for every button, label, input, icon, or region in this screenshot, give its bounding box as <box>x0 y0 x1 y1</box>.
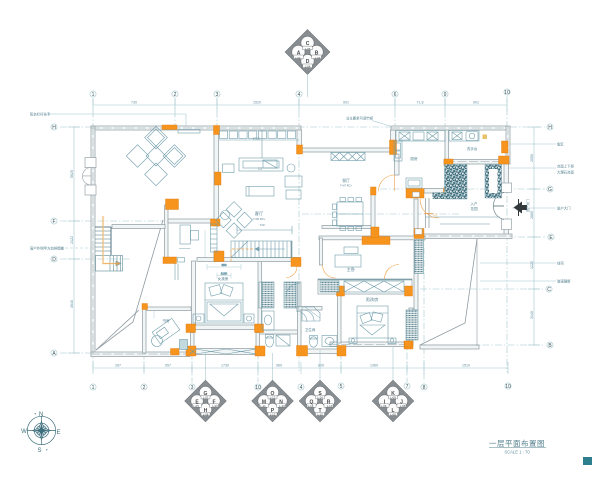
svg-text:5: 5 <box>340 384 343 390</box>
svg-text:E: E <box>56 430 60 436</box>
svg-text:5625: 5625 <box>70 170 74 178</box>
svg-text:1520: 1520 <box>253 101 261 105</box>
svg-text:L-05: L-05 <box>193 404 199 408</box>
svg-text:N: N <box>39 412 43 418</box>
svg-text:3: 3 <box>191 385 194 391</box>
svg-text:L-03: L-03 <box>315 56 321 60</box>
svg-text:厨房: 厨房 <box>410 156 418 161</box>
svg-text:台面上下柜: 台面上下柜 <box>557 164 575 169</box>
svg-text:6: 6 <box>394 92 397 98</box>
svg-text:901: 901 <box>473 101 479 105</box>
svg-text:1222: 1222 <box>530 261 534 269</box>
svg-text:玻璃隔断: 玻璃隔断 <box>557 279 571 284</box>
svg-text:L-12: L-12 <box>270 396 276 400</box>
svg-text:L-04: L-04 <box>305 65 311 69</box>
svg-text:901: 901 <box>343 101 349 105</box>
svg-text:2: 2 <box>143 385 146 391</box>
svg-text:4: 4 <box>300 385 303 391</box>
svg-text:9: 9 <box>444 92 447 98</box>
svg-text:鱼缸: 鱼缸 <box>557 142 564 147</box>
svg-text:1360: 1360 <box>370 364 378 368</box>
svg-text:L-02: L-02 <box>295 56 301 60</box>
svg-text:进户大门: 进户大门 <box>557 206 571 211</box>
svg-text:4: 4 <box>298 92 301 98</box>
svg-text:2865: 2865 <box>530 211 534 219</box>
svg-text:L-08: L-08 <box>390 413 396 417</box>
svg-text:洗手台: 洗手台 <box>467 146 478 151</box>
svg-text:287: 287 <box>115 364 121 368</box>
svg-text:650: 650 <box>221 263 226 267</box>
svg-text:线帘: 线帘 <box>557 261 564 266</box>
svg-text:71.8: 71.8 <box>417 101 424 105</box>
svg-text:G: G <box>548 187 552 193</box>
svg-text:D: D <box>52 257 56 263</box>
svg-text:1130: 1130 <box>221 272 228 276</box>
svg-text:8: 8 <box>423 385 426 391</box>
svg-text:L-08: L-08 <box>203 413 209 417</box>
svg-text:1: 1 <box>92 92 95 98</box>
svg-text:10: 10 <box>504 90 510 96</box>
svg-text:800: 800 <box>318 364 324 368</box>
svg-text:L-14: L-14 <box>317 396 323 400</box>
svg-text:960: 960 <box>276 364 282 368</box>
svg-text:740: 740 <box>259 223 264 227</box>
svg-text:957: 957 <box>165 364 171 368</box>
svg-text:客厅: 客厅 <box>255 210 263 217</box>
svg-text:3: 3 <box>216 92 219 98</box>
svg-text:10: 10 <box>255 385 261 391</box>
svg-text:Y=06 RC+: Y=06 RC+ <box>252 217 265 221</box>
svg-text:主卧: 主卧 <box>347 266 355 273</box>
svg-text:L-09: L-09 <box>390 396 396 400</box>
svg-text:2050: 2050 <box>530 154 534 162</box>
svg-text:1: 1 <box>92 385 95 391</box>
svg-text:10: 10 <box>505 384 511 390</box>
svg-text:L-15: L-15 <box>317 413 323 417</box>
svg-text:窗户外侧甲方加排烟道: 窗户外侧甲方加排烟道 <box>30 246 65 251</box>
svg-text:L-06: L-06 <box>212 404 218 408</box>
svg-text:2: 2 <box>174 92 177 98</box>
svg-text:730: 730 <box>131 101 137 105</box>
svg-text:L2: L2 <box>434 213 438 217</box>
svg-text:T=07 RC+: T=07 RC+ <box>340 184 352 188</box>
svg-text:H: H <box>548 125 552 131</box>
svg-text:7: 7 <box>406 384 409 390</box>
svg-text:男孩房: 男孩房 <box>366 296 379 303</box>
svg-text:女孩房: 女孩房 <box>218 276 229 281</box>
svg-text:L-09: L-09 <box>381 404 387 408</box>
svg-text:L-07: L-07 <box>203 396 209 400</box>
svg-text:花园: 花园 <box>470 206 478 211</box>
svg-text:W: W <box>21 429 27 435</box>
svg-text:SCALE 1 : 70: SCALE 1 : 70 <box>504 450 530 455</box>
svg-text:1510: 1510 <box>462 364 470 368</box>
svg-text:L-14: L-14 <box>327 404 333 408</box>
svg-text:餐厅: 餐厅 <box>342 178 350 183</box>
svg-text:C: C <box>547 287 551 293</box>
svg-text:一层平面布置图: 一层平面布置图 <box>489 438 545 448</box>
svg-text:L-16: L-16 <box>308 404 314 408</box>
svg-text:大理石台面: 大理石台面 <box>557 170 575 175</box>
svg-text:卫生间: 卫生间 <box>305 327 316 332</box>
svg-text:业主要求可调节柜: 业主要求可调节柜 <box>346 116 374 121</box>
svg-text:3640: 3640 <box>70 300 74 308</box>
svg-text:进户大门: 进户大门 <box>525 199 530 212</box>
svg-text:L-05: L-05 <box>305 47 311 51</box>
svg-text:1730: 1730 <box>252 137 259 141</box>
svg-text:1730: 1730 <box>221 364 229 368</box>
svg-text:L-11: L-11 <box>260 404 266 408</box>
svg-text:L-10: L-10 <box>279 404 285 408</box>
svg-text:L-13: L-13 <box>270 413 276 417</box>
svg-text:L-08: L-08 <box>400 404 406 408</box>
svg-text:阳台栏杆扶手: 阳台栏杆扶手 <box>30 112 51 117</box>
svg-text:2122: 2122 <box>70 236 74 244</box>
svg-text:S: S <box>37 448 41 454</box>
svg-text:入户: 入户 <box>470 201 478 206</box>
svg-text:书房: 书房 <box>162 318 170 323</box>
svg-text:H: H <box>52 125 56 131</box>
svg-text:3140: 3140 <box>530 311 534 319</box>
svg-text:212: 212 <box>258 167 263 171</box>
svg-text:F: F <box>52 219 55 225</box>
